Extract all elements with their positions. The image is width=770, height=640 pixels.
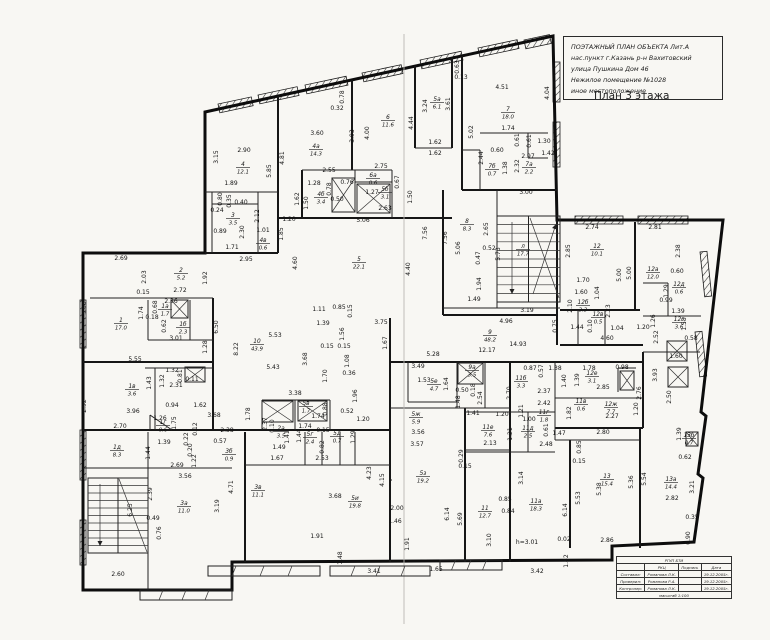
room-number: 5и xyxy=(351,496,359,502)
room-area: 18.3 xyxy=(530,507,543,513)
dimension-label: 5.00 xyxy=(626,266,633,280)
dimension-label: 4.44 xyxy=(408,116,415,130)
room-area: 22.1 xyxy=(353,265,365,271)
dimension-label: 5.00 xyxy=(616,268,623,282)
room-area: 15.4 xyxy=(601,482,614,488)
dimension-label: 0.60 xyxy=(670,268,684,275)
dimension-label: 6.14 xyxy=(562,503,569,517)
dimension-label: 0.18 xyxy=(470,383,477,397)
dimension-label: 0.61 xyxy=(526,134,533,148)
room-number: л xyxy=(520,244,525,250)
balcony xyxy=(208,566,320,576)
dimension-label: 5.53 xyxy=(268,332,282,339)
dimension-label: 1.50 xyxy=(407,190,414,204)
dimension-label: 3.93 xyxy=(349,129,356,143)
dimension-label: 1.85 xyxy=(278,227,285,241)
dimension-label: 2.92 xyxy=(81,399,88,413)
dimension-label: 0.85 xyxy=(498,496,512,503)
dimension-label: 6.14 xyxy=(444,507,451,521)
dimension-label: 0.12 xyxy=(192,422,199,436)
room-area: 1.7 xyxy=(302,409,311,415)
dimension-label: 3.75 xyxy=(374,319,388,326)
balcony-tick xyxy=(288,566,292,576)
stamp-cell: Контролер: xyxy=(617,585,645,592)
dimension-label: 1.20 xyxy=(495,411,509,418)
scanned-floor-plan-page: 0.780.323.602.903.153.934.004.444.815.85… xyxy=(0,0,770,640)
title-block-line: нас.пункт г.Казань р-н Вахитовский xyxy=(571,53,718,64)
room-area: 0.7 xyxy=(488,172,497,178)
room-number: 7а xyxy=(525,162,533,168)
dimension-label: 5.02 xyxy=(468,125,475,139)
dimension-label: 2.38 xyxy=(220,427,234,434)
room-number: 4а xyxy=(312,144,320,150)
dimension-label: 3.19 xyxy=(520,307,534,314)
dimension-label: 2.76 xyxy=(636,386,643,400)
dimension-label: 1.70 xyxy=(576,277,590,284)
stamp-cell xyxy=(617,564,645,571)
dimension-label: 0.76 xyxy=(156,526,163,540)
stamp-cell: Подпись xyxy=(679,564,701,571)
room-area: 11.1 xyxy=(252,493,264,499)
dimension-label: 1.75 xyxy=(171,416,178,430)
dimension-label: 0.82 xyxy=(319,440,326,454)
dimension-label: 2.00 xyxy=(390,505,404,512)
title-block-line: улица Пушкина Дом 46 xyxy=(571,64,718,75)
dimension-label: 1.27 xyxy=(365,189,379,196)
dimension-label: 2.81 xyxy=(648,224,662,231)
dimension-label: 0.76 xyxy=(340,179,354,186)
dimension-label: 2.30 xyxy=(239,225,246,239)
dimension-label: 6.50 xyxy=(213,320,220,334)
dimension-label: 1.42 xyxy=(541,150,555,157)
dimension-label: 3.38 xyxy=(288,390,302,397)
dimension-label: 4.71 xyxy=(228,480,235,494)
dimension-label: 1.91 xyxy=(404,537,411,551)
dimension-label: 1.28 xyxy=(202,340,209,354)
dimension-label: 0.57 xyxy=(538,364,545,378)
room-number: 4б xyxy=(317,192,325,198)
dimension-label: 0.63 xyxy=(454,60,461,74)
dimension-label: 1.62 xyxy=(428,150,442,157)
hatched-wall-segment xyxy=(700,251,712,296)
dimension-label: 1.39 xyxy=(157,439,171,446)
dimension-label: 1.49 xyxy=(467,296,481,303)
dimension-label: 4.81 xyxy=(279,151,286,165)
room-area: 3.3 xyxy=(579,308,588,314)
room-number: 11 xyxy=(481,506,488,512)
dimension-label: 1.44 xyxy=(145,446,152,460)
dimension-label: 1.29 xyxy=(663,284,670,298)
dimension-label: 0.15 xyxy=(347,304,354,318)
room-area: 2.5 xyxy=(524,434,533,440)
room-area: 3.6 xyxy=(128,392,137,398)
dimension-label: 1.21 xyxy=(507,427,514,441)
dimension-label: 0.90 xyxy=(685,531,692,545)
dimension-label: 2.10 xyxy=(567,299,574,313)
dimension-label: 0.87 xyxy=(523,365,537,372)
dimension-label: 3.68 xyxy=(328,493,342,500)
dimension-label: 1.26 xyxy=(650,314,657,328)
dimension-label: 5.53 xyxy=(575,491,582,505)
dimension-label: 3.56 xyxy=(178,473,192,480)
dimension-label: 2.85 xyxy=(565,244,572,258)
dimension-label: 1.38 xyxy=(502,161,509,175)
room-number: 11а xyxy=(531,499,542,505)
room-area: 0.6 xyxy=(369,181,378,187)
dimension-label: 3.19 xyxy=(214,499,221,513)
stamp-cell: 19.12.2005г. xyxy=(701,571,731,578)
room-area: 3.3 xyxy=(517,384,526,390)
dimension-label: 3.01 xyxy=(169,335,183,342)
dimension-label: 2.95 xyxy=(239,256,253,263)
stamp-cell: 19.12.2005г. xyxy=(701,578,731,585)
dimension-label: 1.60 xyxy=(669,353,683,360)
dimension-label: 0.47 xyxy=(475,251,482,265)
dimension-label: 0.15 xyxy=(458,463,472,470)
dimension-label: 0.67 xyxy=(394,175,401,189)
dimension-label: 4.60 xyxy=(292,256,299,270)
dimension-label: 1.74 xyxy=(311,413,325,420)
dimension-label: 2.37 xyxy=(262,417,269,431)
room-number: 1б xyxy=(179,322,187,328)
dimension-label: 2.23 xyxy=(605,304,612,318)
dimension-label: 0.98 xyxy=(615,364,629,371)
dimension-label: 1.08 xyxy=(344,354,351,368)
dimension-label: 2.52 xyxy=(653,330,660,344)
room-area: 10.1 xyxy=(591,252,603,258)
dimension-label: 0.62 xyxy=(678,454,692,461)
room-area: 8.3 xyxy=(113,453,122,459)
stamp-cell: Дата xyxy=(701,564,731,571)
dimension-label: 0.57 xyxy=(213,438,227,445)
dimension-label: 1.29 xyxy=(350,430,357,444)
dimension-label: 2.85 xyxy=(596,384,610,391)
dimension-label: 1.32 xyxy=(159,374,166,388)
dimension-label: 2.13 xyxy=(483,440,497,447)
dimension-label: 0.78 xyxy=(339,90,346,104)
dimension-label: 1.04 xyxy=(610,325,624,332)
room-number: 12а xyxy=(648,267,659,273)
room-number: 11б xyxy=(516,376,527,382)
dimension-label: 4.40 xyxy=(405,262,412,276)
dimension-label: 2.38 xyxy=(675,244,682,258)
dimension-label: 1.44 xyxy=(296,429,303,443)
dimension-label: 0.85 xyxy=(332,304,346,311)
room-area: 12.1 xyxy=(237,170,249,176)
dimension-label: 0.13 xyxy=(454,74,468,81)
dimension-label: 1.28 xyxy=(307,180,321,187)
room-number: 12г xyxy=(674,317,685,323)
room-number: 2а xyxy=(277,426,285,432)
dimension-label: 0.18 xyxy=(145,314,159,321)
dimension-label: 5.54 xyxy=(641,472,648,486)
dimension-label: 1.22 xyxy=(191,454,198,468)
dimension-label: 0.85 xyxy=(576,440,583,454)
room-area: 7.6 xyxy=(484,433,493,439)
room-number: 1в xyxy=(128,384,136,390)
dimension-label: 1.39 xyxy=(671,308,685,315)
dimension-label: 5.73 xyxy=(495,247,502,261)
title-block-line: Нежилое помещение №1028 xyxy=(571,75,718,86)
dimension-label: 0.15 xyxy=(316,427,330,434)
room-area: 0.6 xyxy=(159,428,168,434)
dimension-label: 1.65 xyxy=(429,566,443,573)
dimension-label: 3.61 xyxy=(445,97,452,111)
dimension-label: 2.53 xyxy=(315,455,329,462)
room-number: 12в xyxy=(593,312,604,318)
room-area: 48.2 xyxy=(484,338,497,344)
dimension-label: 2.12 xyxy=(254,209,261,223)
room-area: 5.9 xyxy=(412,420,421,426)
room-area: 0.5 xyxy=(594,320,603,326)
room-number: 7б xyxy=(488,164,496,170)
dimension-label: 0.61 xyxy=(514,133,521,147)
dimension-label: 0.78 xyxy=(326,182,333,196)
room-number: 4в xyxy=(259,238,267,244)
dimension-label: 2.86 xyxy=(600,537,614,544)
dimension-label: 1.89 xyxy=(224,180,238,187)
dimension-label: 1.44 xyxy=(570,324,584,331)
dimension-label: 0.35 xyxy=(685,514,699,521)
room-area: 0.9 xyxy=(225,457,234,463)
room-number: 5б xyxy=(381,187,389,193)
dimension-label: 1.47 xyxy=(552,430,566,437)
dimension-label: 5.06 xyxy=(455,241,462,255)
dimension-label: 0.15 xyxy=(572,458,586,465)
dimension-label: 1.60 xyxy=(574,289,588,296)
dimension-label: 0.40 xyxy=(234,199,248,206)
dimension-label: 4.96 xyxy=(499,318,513,325)
dimension-label: 1.62 xyxy=(428,139,442,146)
room-number: 3 xyxy=(231,213,235,219)
dimension-label: 2.48 xyxy=(539,441,553,448)
stamp-cell xyxy=(679,578,701,585)
room-area: 6.1 xyxy=(433,105,442,111)
dimension-label: 2.70 xyxy=(506,386,513,400)
room-number: 5з xyxy=(420,471,427,477)
dimension-label: 4.00 xyxy=(364,126,371,140)
room-number: 11е xyxy=(483,425,494,431)
dimension-label: 1.20 xyxy=(636,324,650,331)
room-area: 4.7 xyxy=(430,387,439,393)
dimension-label: 0.81 xyxy=(177,369,184,383)
dimension-label: 2.54 xyxy=(477,391,484,405)
dimension-label: 3.24 xyxy=(422,99,429,113)
room-number: 2 xyxy=(179,268,183,274)
stamp-cell xyxy=(679,585,701,592)
dimension-label: 5.06 xyxy=(81,301,88,315)
room-area: 3.6 xyxy=(675,325,684,331)
room-area: 11.0 xyxy=(178,509,191,515)
dimension-label: 2.42 xyxy=(537,400,551,407)
room-number: 1д xyxy=(113,445,121,451)
dimension-label: 1.50 xyxy=(303,196,310,210)
dimension-label: 0.58 xyxy=(684,335,698,342)
balcony-tick xyxy=(260,566,264,576)
dimension-label: 3.56 xyxy=(411,429,425,436)
dimension-label: 1.04 xyxy=(594,286,601,300)
room-number: 10 xyxy=(253,339,261,345)
room-area: 8.3 xyxy=(463,227,472,233)
dimension-label: 5.43 xyxy=(266,364,280,371)
stamp-cell: Проверил: xyxy=(617,578,645,585)
dimension-label: 1.38 xyxy=(548,365,562,372)
room-number: 8 xyxy=(465,219,469,225)
dimension-label: 0.99 xyxy=(659,297,673,304)
plan-title: План 3 этажа xyxy=(594,90,669,102)
room-area: 0.6 xyxy=(675,290,684,296)
dimension-label: 2.37 xyxy=(537,388,551,395)
room-area: 12.0 xyxy=(647,275,660,281)
dimension-label: 1.39 xyxy=(316,320,330,327)
room-number: 4 xyxy=(241,162,245,168)
dimension-label: 5.06 xyxy=(356,217,370,224)
dimension-label: 1.91 xyxy=(310,533,324,540)
dimension-label: 0.02 xyxy=(557,536,571,543)
room-area: 3.5 xyxy=(468,373,477,379)
dimension-label: 1.56 xyxy=(339,327,346,341)
dimension-label: 0.15 xyxy=(337,343,351,350)
room-number: 5е xyxy=(430,379,438,385)
room-area: 3.1 xyxy=(588,379,597,385)
room-area: 18.0 xyxy=(502,115,515,121)
dimension-label: 1.64 xyxy=(443,377,450,391)
dimension-label: 1.92 xyxy=(202,271,209,285)
dimension-label: 5.28 xyxy=(426,351,440,358)
stamp-cell: РГУП БТИ xyxy=(617,557,732,564)
room-number: 13 xyxy=(603,474,611,480)
dimension-label: 2.90 xyxy=(237,147,251,154)
dimension-label: 3.96 xyxy=(126,408,140,415)
dimension-label: 2.55 xyxy=(322,167,336,174)
room-number: 11в xyxy=(576,399,587,405)
room-area: 7.7 xyxy=(607,410,616,416)
dimension-label: 4.60 xyxy=(600,335,614,342)
dimension-label: 2.63 xyxy=(378,205,392,212)
room-area: 0.6 xyxy=(577,407,586,413)
room-number: 5а xyxy=(433,97,441,103)
dimension-label: 4.51 xyxy=(495,84,509,91)
dimension-label: 3.60 xyxy=(310,130,324,137)
dimension-label: 0.61 xyxy=(543,423,550,437)
dimension-label: 1.41 xyxy=(466,410,480,417)
dimension-label: 0.32 xyxy=(330,105,344,112)
dimension-label: 2.32 xyxy=(514,159,521,173)
room-number: 11г xyxy=(539,410,550,416)
dimension-label: 2.70 xyxy=(113,423,127,430)
dimension-label: 2.75 xyxy=(374,163,388,170)
room-area: 14.3 xyxy=(310,152,323,158)
dimension-label: 1.62 xyxy=(294,192,301,206)
room-area: 3.5 xyxy=(277,434,286,440)
dimension-label: 1.70 xyxy=(322,369,329,383)
dimension-label: 2.39 xyxy=(147,487,154,501)
stair-flight-line xyxy=(530,218,559,298)
dimension-label: 3.57 xyxy=(410,441,424,448)
dimension-label: 1.74 xyxy=(138,306,145,320)
dimension-label: 7.56 xyxy=(422,226,429,240)
dimension-label: 12.17 xyxy=(478,347,495,354)
room-number: 12 xyxy=(593,244,601,250)
stamp-table: РГУП БТИРКЦПодписьДатаСоставил:Романова … xyxy=(616,556,732,599)
dimension-label: 0.52 xyxy=(340,408,354,415)
dimension-label: 5.69 xyxy=(457,512,464,526)
dimension-label: 0.11 xyxy=(185,376,199,383)
dimension-label: 3.68 xyxy=(207,412,221,419)
dimension-label: 3.14 xyxy=(518,471,525,485)
room-area: 3.1 xyxy=(381,195,390,201)
room-number: 13б xyxy=(684,433,695,439)
room-number: 5ж xyxy=(412,412,422,418)
dimension-label: 2.72 xyxy=(173,287,187,294)
room-area: 17.0 xyxy=(115,326,128,332)
room-number: 12д xyxy=(673,282,684,288)
dimension-label: 0.52 xyxy=(482,245,496,252)
dimension-label: 1.20 xyxy=(633,402,640,416)
dimension-label: 1.00 xyxy=(522,416,536,423)
dimension-label: 2.97 xyxy=(521,153,535,160)
room-area: 12.7 xyxy=(479,514,492,520)
dimension-label: 5.55 xyxy=(128,356,142,363)
dimension-label: 3.15 xyxy=(213,150,220,164)
dimension-label: 14.93 xyxy=(509,341,526,348)
dimension-label: 3.42 xyxy=(530,568,544,575)
dimension-label: 1.48 xyxy=(337,551,344,565)
dimension-label: 3.49 xyxy=(411,363,425,370)
room-number: 12ж xyxy=(605,402,618,408)
room-area: 19.8 xyxy=(349,504,362,510)
room-area: 3.4 xyxy=(317,200,326,206)
dimension-label: 5.85 xyxy=(266,164,273,178)
dimension-label: 1.30 xyxy=(537,138,551,145)
room-number: 6 xyxy=(386,115,390,121)
dimension-label: 1.46 xyxy=(388,518,402,525)
room-area: 0.7 xyxy=(333,439,342,445)
dimension-label: 0.49 xyxy=(146,515,160,522)
room-number: 12е xyxy=(587,371,598,377)
room-number: 1 xyxy=(119,318,123,324)
room-area: 0.6 xyxy=(259,246,268,252)
dimension-label: 0.75 xyxy=(552,319,559,333)
room-number: 12б xyxy=(578,300,589,306)
room-number: 6а xyxy=(369,173,377,179)
dimension-label: 1.62 xyxy=(193,402,207,409)
dimension-label: 6.25 xyxy=(127,503,134,517)
dimension-label: 3.41 xyxy=(367,568,381,575)
dimension-label: 2.31 xyxy=(169,382,183,389)
room-number: 3а xyxy=(180,501,188,507)
dimension-label: 2.60 xyxy=(111,571,125,578)
dimension-label: 0.94 xyxy=(165,402,179,409)
dimension-label: 2.69 xyxy=(114,255,128,262)
dimension-label: 1.42 xyxy=(563,554,570,568)
room-number: 11д xyxy=(522,426,533,432)
dimension-label: 0.10 xyxy=(269,419,276,433)
dimension-label: 1.74 xyxy=(298,423,312,430)
dimension-label: 2.80 xyxy=(596,429,610,436)
dimension-label: 0.35 xyxy=(226,194,233,208)
dimension-label: 2.69 xyxy=(170,462,184,469)
dimension-label: 1.53 xyxy=(417,377,431,384)
room-number: 5в xyxy=(302,401,310,407)
dimension-label: 0.24 xyxy=(210,207,224,214)
dimension-label: 8.22 xyxy=(233,342,240,356)
dimension-label: 1.78 xyxy=(245,407,252,421)
dimension-label: 1.82 xyxy=(566,406,573,420)
dimension-label: 1.71 xyxy=(225,244,239,251)
room-number: 9 xyxy=(488,330,492,336)
room-area: 14.4 xyxy=(665,485,678,491)
